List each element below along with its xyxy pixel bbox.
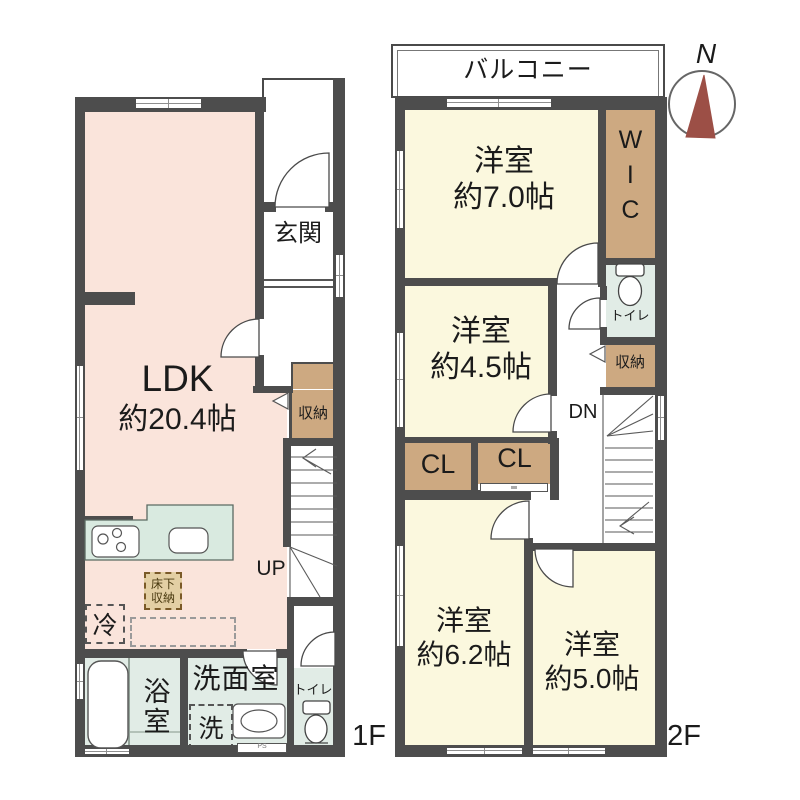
wall xyxy=(600,327,607,340)
wall xyxy=(262,202,276,212)
window xyxy=(447,746,522,756)
toilet-2f-label: トイレ xyxy=(604,308,656,325)
toilet-room-2f xyxy=(606,262,655,339)
floorplan-canvas: 床下 収納 冷 洗 xyxy=(0,0,800,800)
bath-divider-line xyxy=(128,657,130,750)
wall xyxy=(75,516,133,526)
window xyxy=(533,746,605,756)
room45-size: 約4.5帖 xyxy=(430,351,532,386)
wall xyxy=(530,543,657,551)
wall xyxy=(84,292,135,305)
window xyxy=(75,664,85,699)
room50-name: 洋室 xyxy=(564,629,620,661)
toilet-room-1f xyxy=(294,668,333,750)
room7-size: 約7.0帖 xyxy=(453,181,555,216)
ldk-name: LDK xyxy=(142,358,214,401)
wall xyxy=(550,438,559,500)
bath-label: 浴室 xyxy=(137,666,171,748)
wall xyxy=(325,202,345,212)
stairs-area-1f xyxy=(290,444,337,605)
room62-size: 約6.2帖 xyxy=(417,639,512,671)
balcony-label: バルコニー xyxy=(391,48,665,92)
closet-right-label: CL xyxy=(478,438,551,480)
window xyxy=(447,97,551,109)
room7-label: 洋室 約7.0帖 xyxy=(424,136,584,224)
wall xyxy=(471,440,478,492)
entrance-label: 玄関 xyxy=(263,218,333,250)
fridge-box: 冷 xyxy=(85,604,125,644)
wall xyxy=(600,387,656,395)
room45-name: 洋室 xyxy=(451,315,511,350)
washer-box: 洗 xyxy=(189,704,233,750)
wic-label: WIC xyxy=(612,116,648,240)
wall xyxy=(287,597,337,606)
stairs-down-label: DN xyxy=(560,400,606,424)
north-label: N xyxy=(688,38,724,70)
room7-name: 洋室 xyxy=(474,145,534,180)
compass-circle xyxy=(668,70,736,138)
closet-sliding-door xyxy=(480,483,548,492)
wall xyxy=(283,446,291,547)
stairs-up-label: UP xyxy=(252,556,290,582)
room50-label: 洋室 約5.0帖 xyxy=(530,616,654,708)
underfloor-storage-box: 床下 収納 xyxy=(144,572,182,610)
wall xyxy=(283,438,337,446)
room50-size: 約5.0帖 xyxy=(545,663,640,695)
ldk-label: LDK 約20.4帖 xyxy=(95,350,260,446)
window xyxy=(395,333,405,427)
window xyxy=(395,151,405,228)
pipe-space-label: PS xyxy=(237,742,287,753)
room45-label: 洋室 約4.5帖 xyxy=(410,304,552,396)
wall xyxy=(255,112,264,319)
wall xyxy=(404,278,557,286)
wall xyxy=(605,258,655,265)
door-handle-mark xyxy=(511,486,517,489)
window xyxy=(334,255,345,297)
wall xyxy=(600,337,656,345)
toilet-1f-label: トイレ xyxy=(291,682,335,699)
closet-left-label: CL xyxy=(404,444,472,486)
wall xyxy=(287,605,294,750)
window xyxy=(75,366,85,470)
closet-1f-label: 収納 xyxy=(289,404,337,424)
washroom-label: 洗面室 xyxy=(185,662,287,696)
shoe-closet xyxy=(291,362,333,389)
window xyxy=(656,396,666,440)
window xyxy=(136,97,201,110)
wall xyxy=(600,286,607,300)
dining-table-outline xyxy=(130,617,236,647)
room62-name: 洋室 xyxy=(436,605,492,637)
floor1-label: 1F xyxy=(343,720,395,754)
ldk-size: 約20.4帖 xyxy=(118,403,236,438)
stairs-area-2f xyxy=(600,392,655,543)
closet-2f-label: 収納 xyxy=(604,354,656,372)
entrance-porch xyxy=(262,78,335,209)
window xyxy=(85,747,129,756)
room62-label: 洋室 約6.2帖 xyxy=(404,588,524,688)
wall xyxy=(75,649,247,658)
floor2-label: 2F xyxy=(658,720,710,754)
entrance-step-lines xyxy=(263,279,333,288)
